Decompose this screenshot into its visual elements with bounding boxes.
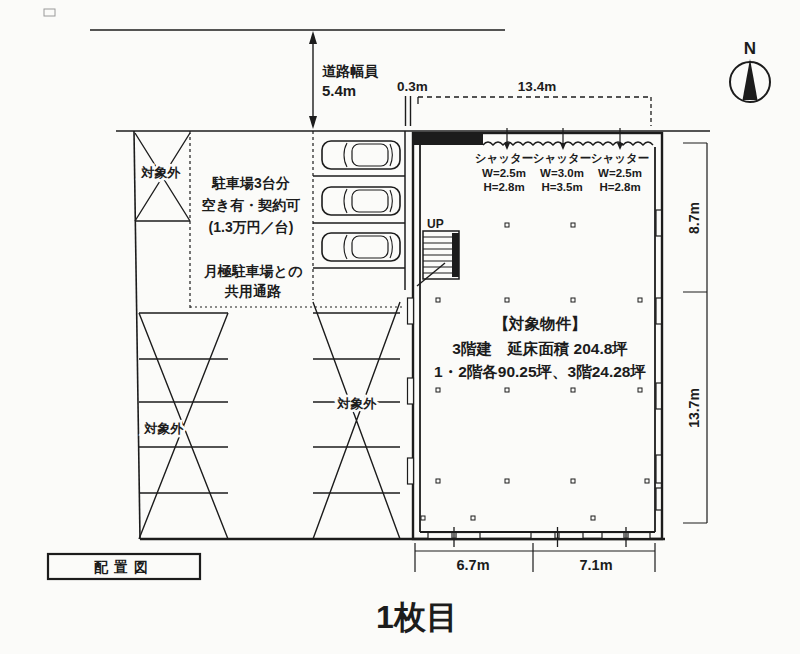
property-title: 【対象物件】 — [494, 315, 587, 332]
dim-gap-label: 0.3m — [397, 79, 428, 94]
arrow-up-icon — [309, 31, 317, 44]
shutter-2-name: シャッター — [533, 152, 592, 164]
shutter-1-width: W=2.5m — [482, 167, 526, 179]
excluded-label: 対象外 — [141, 165, 182, 180]
arrow-down-icon — [560, 143, 566, 150]
excluded-label: 対象外 — [337, 396, 378, 411]
excluded-area-upper-left: 対象外 — [135, 133, 190, 221]
property-desc-line2: 1・2階各90.25坪、3階24.28坪 — [434, 363, 646, 380]
site-west-line — [134, 131, 140, 539]
dim-right-bottom-label: 13.7m — [686, 388, 702, 428]
car-parking-stalls — [313, 131, 405, 290]
shutter-1-name: シャッター — [475, 152, 534, 164]
shared-passage-line1: 月極駐車場との — [203, 263, 303, 279]
north-compass: N — [730, 39, 770, 102]
shutter-2-width: W=3.0m — [540, 167, 584, 179]
shared-passage-line2: 共用通路 — [224, 283, 282, 299]
drawing-label: 配置図 — [94, 559, 154, 575]
shutter-3-height: H=2.8m — [599, 181, 640, 193]
property-desc-line1: 3階建 延床面積 204.8坪 — [452, 340, 628, 357]
road: 道路幅員 5.4m — [90, 30, 505, 129]
arrow-down-icon — [504, 143, 510, 150]
staircase: UP — [417, 217, 459, 286]
shutter-3-width: W=2.5m — [598, 167, 642, 179]
car-icon — [322, 141, 400, 169]
parking-info-area: 駐車場3台分 空き有・契約可 (1.3万円／台) 月極駐車場との 共用通路 — [190, 131, 405, 310]
cross-out-lines — [313, 302, 400, 539]
arrow-down-icon — [309, 116, 317, 129]
car-icon — [322, 187, 400, 215]
excluded-area-lower-left: 対象外 — [139, 313, 228, 539]
right-dimensions: 8.7m 13.7m — [683, 143, 707, 523]
parking-info-line3: (1.3万円／台) — [209, 219, 294, 235]
arrow-down-icon — [617, 143, 623, 150]
shutter-3-name: シャッター — [591, 152, 650, 164]
excluded-label: 対象外 — [144, 421, 185, 436]
parking-info-line2: 空き有・契約可 — [202, 197, 300, 213]
page-title: 1枚目 — [376, 599, 458, 635]
road-width-label: 5.4m — [322, 82, 356, 99]
shutter-2-height: H=3.5m — [541, 181, 582, 193]
dim-right-top-label: 8.7m — [686, 202, 702, 234]
scan-artifact — [44, 9, 55, 16]
dim-bottom-left-label: 6.7m — [456, 557, 489, 573]
compass-needle-icon — [743, 59, 758, 100]
dim-bottom-right-label: 7.1m — [579, 557, 612, 573]
parking-info-line1: 駐車場3台分 — [211, 175, 290, 191]
compass-north-label: N — [744, 39, 756, 58]
stall-lines — [139, 313, 228, 493]
shutter-labels: シャッター W=2.5m H=2.8m シャッター W=3.0m H=3.5m … — [475, 152, 650, 193]
site-plan-page: 道路幅員 5.4m 0.3m 13.4m N 対象外 駐車場3台分 空き有・契約… — [0, 0, 800, 654]
excluded-area-lower-middle: 対象外 — [313, 302, 400, 539]
site-plan-drawing: 道路幅員 5.4m 0.3m 13.4m N 対象外 駐車場3台分 空き有・契約… — [0, 0, 800, 654]
bottom-dim-lines — [415, 543, 655, 572]
top-dimensions: 0.3m 13.4m — [397, 79, 651, 126]
drawing-label-box: 配置図 — [48, 554, 200, 579]
right-dim-lines — [683, 143, 707, 523]
bottom-dimensions: 6.7m 7.1m — [415, 543, 655, 573]
building-inner-wall — [420, 141, 655, 532]
road-name-label: 道路幅員 — [322, 63, 379, 79]
dim-width-label: 13.4m — [518, 79, 556, 94]
property-description: 【対象物件】 3階建 延床面積 204.8坪 1・2階各90.25坪、3階24.… — [434, 315, 646, 380]
stair-up-label: UP — [427, 217, 444, 231]
building-top-left-wall — [414, 134, 483, 145]
car-icon — [322, 233, 400, 261]
building-outer-wall — [413, 133, 662, 539]
shutter-1-height: H=2.8m — [483, 181, 524, 193]
stair-edge — [452, 233, 459, 277]
